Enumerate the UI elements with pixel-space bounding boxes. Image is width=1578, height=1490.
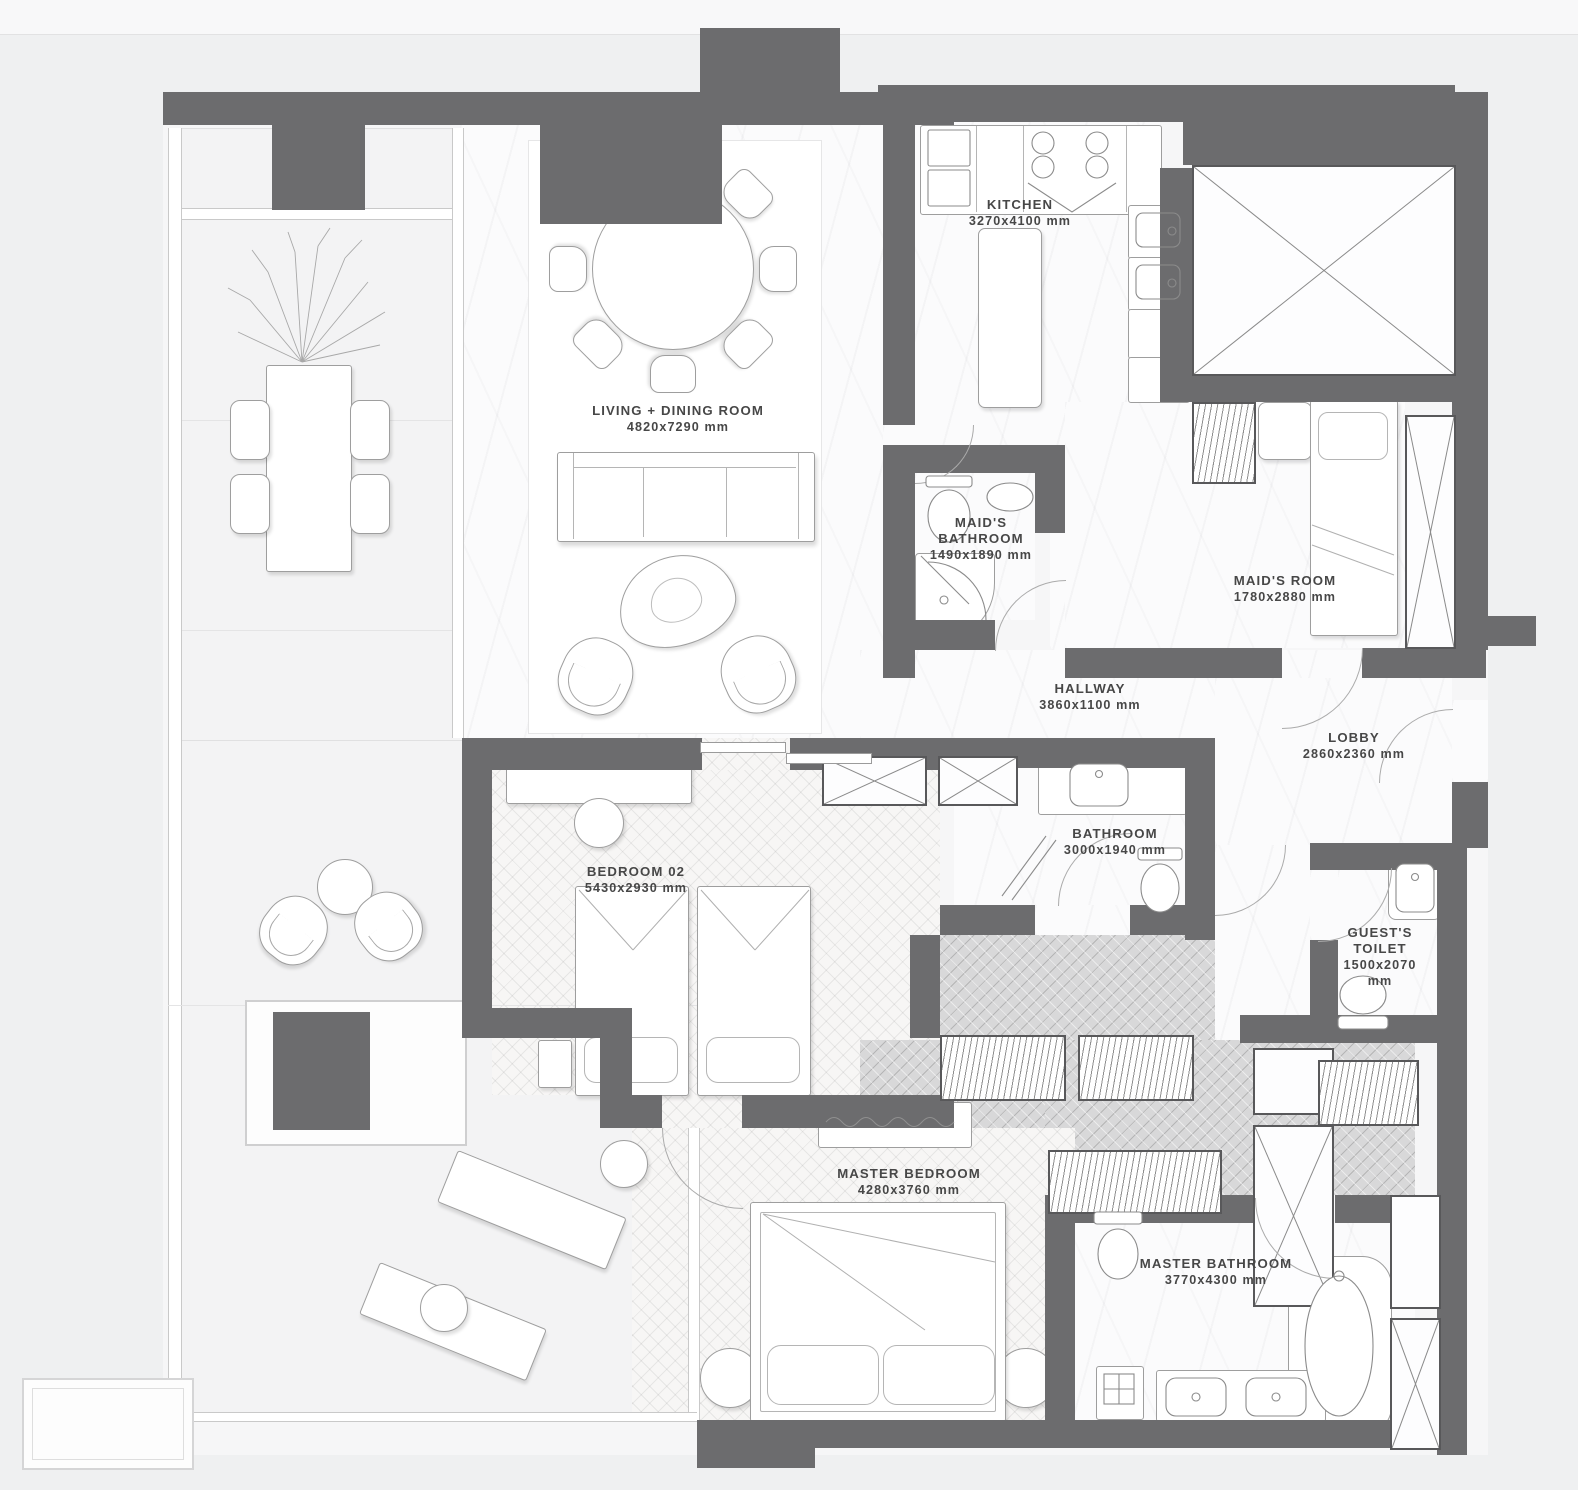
room-name: LOBBY xyxy=(1303,730,1405,746)
sofa xyxy=(557,452,815,542)
wall-segment xyxy=(1486,616,1536,646)
room-dims: 5430x2930 mm xyxy=(585,880,687,896)
wall-segment xyxy=(878,85,1455,122)
room-label-maids-room: MAID'S ROOM 1780x2880 mm xyxy=(1234,573,1336,605)
terrace-chair xyxy=(350,474,390,534)
storage-niche xyxy=(938,756,1018,806)
room-dims: 3270x4100 mm xyxy=(969,213,1071,229)
bedroom02-bed xyxy=(575,886,689,1096)
door-threshold xyxy=(1035,905,1130,935)
sliding-door-leaf xyxy=(700,742,786,753)
room-dims: 1490x1890 mm xyxy=(917,547,1045,563)
maids-wardrobe xyxy=(1192,402,1256,484)
maids-bed-pillow xyxy=(1318,412,1388,460)
x-mark-icon xyxy=(824,758,925,804)
dining-chair xyxy=(549,246,587,292)
sofa-armrest xyxy=(558,453,574,539)
room-label-bedroom02: BEDROOM 02 5430x2930 mm xyxy=(585,864,687,896)
terrace-chair xyxy=(230,474,270,534)
room-name: LIVING + DINING ROOM xyxy=(592,403,764,419)
maids-nightstand xyxy=(1258,402,1312,460)
terrace-edge-window xyxy=(168,128,182,1420)
sofa-seat-line xyxy=(726,467,727,537)
x-mark-icon xyxy=(1392,1320,1439,1448)
wall-segment xyxy=(272,125,365,210)
closet-box xyxy=(1390,1195,1441,1309)
master-pillow xyxy=(883,1345,995,1405)
wall-segment xyxy=(1065,648,1282,678)
room-label-kitchen: KITCHEN 3270x4100 mm xyxy=(969,197,1071,229)
wall-segment xyxy=(540,125,722,224)
x-mark-icon xyxy=(1194,167,1454,374)
sofa-back-line xyxy=(574,467,796,468)
bedroom02-nightstand xyxy=(538,1040,572,1088)
sliding-door-leaf xyxy=(786,753,872,764)
wall-segment xyxy=(910,935,940,1038)
wall-segment xyxy=(1362,648,1486,678)
lounger-side-table xyxy=(420,1284,468,1332)
master-vanity xyxy=(1156,1370,1326,1422)
shower-unit xyxy=(1096,1366,1144,1420)
wall-segment xyxy=(1130,905,1215,935)
room-dims: 2860x2360 mm xyxy=(1303,746,1405,762)
wall-segment xyxy=(815,1420,1445,1448)
room-label-hallway: HALLWAY 3860x1100 mm xyxy=(1039,681,1140,713)
room-label-bathroom: BATHROOM 3000x1940 mm xyxy=(1064,826,1166,858)
planter-inner-line xyxy=(32,1388,184,1460)
wardrobe xyxy=(1048,1150,1222,1214)
room-label-master-bathroom: MASTER BATHROOM 3770x4300 mm xyxy=(1140,1256,1293,1288)
wall-segment xyxy=(1183,122,1455,165)
wardrobe xyxy=(940,1035,1066,1101)
planter-box xyxy=(273,1012,370,1130)
room-dims: 3860x1100 mm xyxy=(1039,697,1140,713)
bedroom02-bed xyxy=(697,886,811,1096)
room-name: BATHROOM xyxy=(1064,826,1166,842)
counter-divider xyxy=(1126,126,1127,212)
x-mark-icon xyxy=(940,758,1016,804)
lounger-side-table xyxy=(600,1140,648,1188)
room-dims: 4820x7290 mm xyxy=(592,419,764,435)
wall-segment xyxy=(462,770,492,1008)
terrace-bottom-edge xyxy=(168,1412,697,1422)
wall-segment xyxy=(700,28,840,94)
dining-chair xyxy=(759,246,797,292)
terrace-chair xyxy=(350,400,390,460)
master-pillow xyxy=(767,1345,879,1405)
room-label-living: LIVING + DINING ROOM 4820x7290 mm xyxy=(592,403,764,435)
entry-threshold xyxy=(1452,700,1488,782)
room-name: HALLWAY xyxy=(1039,681,1140,697)
door-threshold xyxy=(662,1095,742,1128)
room-label-master-bedroom: MASTER BEDROOM 4280x3760 mm xyxy=(837,1166,981,1198)
bedroom02-stool xyxy=(574,798,624,848)
room-dims: 1780x2880 mm xyxy=(1234,589,1336,605)
master-bed xyxy=(750,1202,1006,1422)
room-dims: 4280x3760 mm xyxy=(837,1182,981,1198)
room-name: BEDROOM 02 xyxy=(585,864,687,880)
floor-plan: LIVING + DINING ROOM 4820x7290 mm KITCHE… xyxy=(0,0,1578,1490)
wall-segment xyxy=(883,445,915,678)
wardrobe xyxy=(1318,1060,1419,1126)
terrace-chair xyxy=(230,400,270,460)
sofa-armrest xyxy=(798,453,814,539)
room-dims: 3000x1940 mm xyxy=(1064,842,1166,858)
living-terrace-window xyxy=(452,128,464,738)
wall-segment xyxy=(940,905,1035,935)
wall-segment xyxy=(600,1008,632,1128)
room-name: MAID'S ROOM xyxy=(1234,573,1336,589)
room-name: MAID'S BATHROOM xyxy=(917,515,1045,547)
wall-segment xyxy=(632,1095,662,1128)
wall-segment xyxy=(1452,782,1488,848)
wall-segment xyxy=(1045,1195,1075,1445)
room-name: MASTER BATHROOM xyxy=(1140,1256,1293,1272)
wall-segment xyxy=(697,1420,815,1468)
wall-segment xyxy=(742,1095,954,1128)
wall-segment xyxy=(462,738,702,770)
wall-segment xyxy=(1192,372,1452,402)
dining-chair xyxy=(650,355,696,393)
wall-segment xyxy=(1310,843,1455,870)
wall-segment xyxy=(1160,168,1192,402)
shaft-closet xyxy=(1405,415,1456,649)
shaft-closet xyxy=(1390,1318,1441,1450)
terrace-floor-line xyxy=(182,630,452,631)
room-label-guests-toilet: GUEST'S TOILET 1500x2070 mm xyxy=(1330,925,1430,989)
wardrobe xyxy=(1078,1035,1194,1101)
room-label-lobby: LOBBY 2860x2360 mm xyxy=(1303,730,1405,762)
kitchen-island xyxy=(978,228,1042,408)
terrace-table xyxy=(266,365,352,572)
wall-segment xyxy=(883,122,915,425)
room-name: GUEST'S TOILET xyxy=(1330,925,1430,957)
elevator-shaft xyxy=(1192,165,1456,376)
wall-segment xyxy=(1452,92,1488,650)
wall-segment xyxy=(1437,843,1467,1455)
outdoor-planter xyxy=(22,1378,194,1470)
wall-segment xyxy=(163,92,954,125)
room-name: KITCHEN xyxy=(969,197,1071,213)
room-label-maids-bathroom: MAID'S BATHROOM 1490x1890 mm xyxy=(917,515,1045,563)
sofa-seat-line xyxy=(643,467,644,537)
room-dims: 1500x2070 mm xyxy=(1330,957,1430,989)
wall-segment xyxy=(1240,1015,1467,1043)
bed-pillow xyxy=(706,1037,800,1083)
room-dims: 3770x4300 mm xyxy=(1140,1272,1293,1288)
wall-segment xyxy=(915,620,995,650)
x-mark-icon xyxy=(1407,417,1454,647)
room-name: MASTER BEDROOM xyxy=(837,1166,981,1182)
